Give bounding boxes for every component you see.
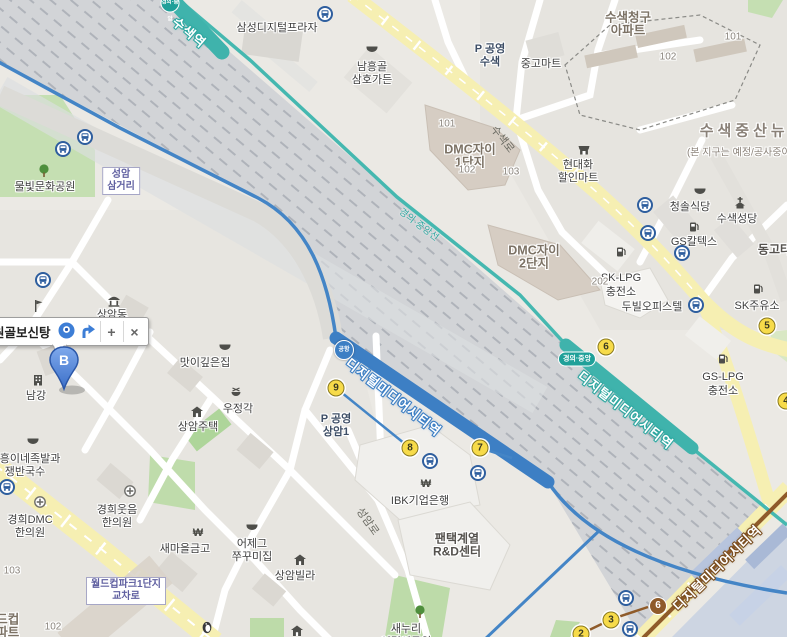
bus-stop-icon[interactable] xyxy=(55,141,72,158)
parking-sangam1-label: 상암1 xyxy=(323,423,349,439)
hospital-icon xyxy=(124,485,137,498)
bus-stop-icon[interactable] xyxy=(640,225,657,242)
exit-2-badge[interactable]: 2 xyxy=(573,626,590,637)
masikgipeunjip-label: 맛이깊은집 xyxy=(180,354,231,370)
bus-stop-icon[interactable] xyxy=(470,465,487,482)
bldg-icon xyxy=(32,374,44,387)
food-icon xyxy=(694,186,707,197)
exit-6-badge[interactable]: 6 xyxy=(598,339,615,356)
tree-icon xyxy=(414,605,427,619)
bus-stop-icon[interactable] xyxy=(317,6,334,23)
lot-number: 202 xyxy=(592,277,609,288)
gas-icon xyxy=(688,221,700,233)
roadview-icon[interactable] xyxy=(56,321,78,342)
sangam-jutaek-label: 상암주택 xyxy=(178,418,218,434)
lot-number: 101 xyxy=(725,32,742,43)
gov-icon xyxy=(107,295,121,307)
callout-close-button[interactable]: × xyxy=(123,321,146,342)
tree-icon xyxy=(38,164,51,178)
jiheung-jokbal-label: 쟁반국수 xyxy=(5,463,45,479)
donggo-town-label: 동고타운 xyxy=(758,241,787,258)
exit-7-badge[interactable]: 7 xyxy=(472,440,489,457)
exit-3-badge[interactable]: 3 xyxy=(603,612,620,629)
dmc-station-line6-line-badge: 6 xyxy=(649,597,667,615)
sk-lpg-label: 충전소 xyxy=(606,283,636,299)
kyunghee-woosum-clinic-label: 한의원 xyxy=(102,514,132,530)
bus-stop-icon[interactable] xyxy=(77,129,94,146)
house-icon xyxy=(191,406,204,418)
callout-place-title: 원골보신탕 xyxy=(0,322,51,341)
lot-number: 102 xyxy=(459,165,476,176)
bus-stop-icon[interactable] xyxy=(622,621,639,637)
susaek-cathedral-label: 수색성당 xyxy=(717,210,757,226)
route-arrow-icon[interactable] xyxy=(78,321,100,342)
susaek-chunggu-apt-label: 아파트 xyxy=(611,19,646,38)
hospital-icon xyxy=(34,496,47,509)
sk-gas-station-label: SK주유소 xyxy=(734,297,779,313)
sangam-villa-label: 상암빌라 xyxy=(275,567,315,583)
worldcuppark-apt-label: 아파트 xyxy=(0,621,19,637)
namheunggol-samhogarden-label: 삼호가든 xyxy=(352,71,392,87)
gas-icon xyxy=(752,283,764,295)
saemaul-geumgo-label: 새마을금고 xyxy=(160,540,211,556)
house-icon xyxy=(294,554,307,566)
house-icon xyxy=(291,625,304,637)
bus-stop-icon[interactable] xyxy=(35,272,52,289)
food2-icon xyxy=(230,387,243,399)
seongam-samgeori: 성암삼거리 xyxy=(102,167,140,195)
zoom-in-button[interactable]: + xyxy=(100,321,123,342)
samsung-digital-plaza-label: 삼성디지털프라자 xyxy=(237,19,318,35)
bus-stop-icon[interactable] xyxy=(674,245,691,262)
won-icon: ₩ xyxy=(193,527,203,539)
mulbit-culture-park-label: 물빛문화공원 xyxy=(15,178,76,194)
church-icon xyxy=(734,197,746,210)
school-icon xyxy=(33,300,44,313)
eojegeu-jjukkumi-label: 쭈꾸미집 xyxy=(232,548,272,564)
worldcuppark-intersection: 월드컵파크1단지교차로 xyxy=(86,577,166,605)
bus-stop-icon[interactable] xyxy=(637,197,654,214)
map-canvas[interactable]: 삼성디지털프라자남흥골삼호가든P 공영수색중고마트수색청구아파트현대화할인마트수… xyxy=(0,0,787,637)
lot-number: 103 xyxy=(4,566,21,577)
junggo-mart-label: 중고마트 xyxy=(521,55,561,71)
bus-stop-icon[interactable] xyxy=(618,590,635,607)
shop-icon xyxy=(578,144,591,156)
hyundaehwa-mart-label: 할인마트 xyxy=(558,169,598,185)
dmc-xi-2danji-label: 2단지 xyxy=(519,252,549,271)
gas-icon xyxy=(615,246,627,258)
lot-number: 103 xyxy=(503,167,520,178)
kyunghee-dmc-clinic-label: 한의원 xyxy=(15,524,45,540)
exit-4-badge[interactable]: 4 xyxy=(778,393,787,410)
dubil-officetel-label: 두빌오피스텔 xyxy=(622,298,683,314)
bus-stop-icon[interactable] xyxy=(0,479,16,496)
cheongsol-restaurant-label: 청솔식당 xyxy=(670,198,710,214)
food-icon xyxy=(27,436,40,447)
saenuri-childrens-park-label: 어린이공원 xyxy=(381,633,432,637)
newtown-note-label: (본 지구는 예정/공사중이므로 xyxy=(687,144,787,159)
ibk-bank-label: IBK기업은행 xyxy=(391,492,449,508)
food-icon xyxy=(246,522,259,533)
food-icon xyxy=(366,44,379,55)
penguin-icon xyxy=(201,621,213,634)
woojeonggak-label: 우정각 xyxy=(223,400,253,416)
dmc-station-arex-line-badge: 공항 xyxy=(334,340,354,360)
susaek-jeungsan-newtown-label: 수색중산뉴타운 xyxy=(700,120,787,141)
lot-number: 102 xyxy=(660,52,677,63)
gas-icon xyxy=(717,353,729,365)
won-icon: ₩ xyxy=(421,478,431,490)
bus-stop-icon[interactable] xyxy=(422,453,439,470)
parking-susaek-label: 수색 xyxy=(480,53,500,69)
food-icon xyxy=(219,342,232,353)
gs-lpg-label: 충전소 xyxy=(708,382,738,398)
lot-number: 101 xyxy=(439,119,456,130)
exit-9-badge[interactable]: 9 xyxy=(328,380,345,397)
lot-number: 102 xyxy=(45,622,62,633)
marker-b-pin[interactable]: B xyxy=(44,341,88,397)
marker-b-label: B xyxy=(59,352,69,368)
exit-5-badge[interactable]: 5 xyxy=(759,318,776,335)
exit-8-badge[interactable]: 8 xyxy=(402,440,419,457)
pantech-rnd-label: R&D센터 xyxy=(433,542,481,559)
bus-stop-icon[interactable] xyxy=(688,297,705,314)
dmc-station-gyeongui-line-badge: 경의·중앙 xyxy=(558,352,596,367)
